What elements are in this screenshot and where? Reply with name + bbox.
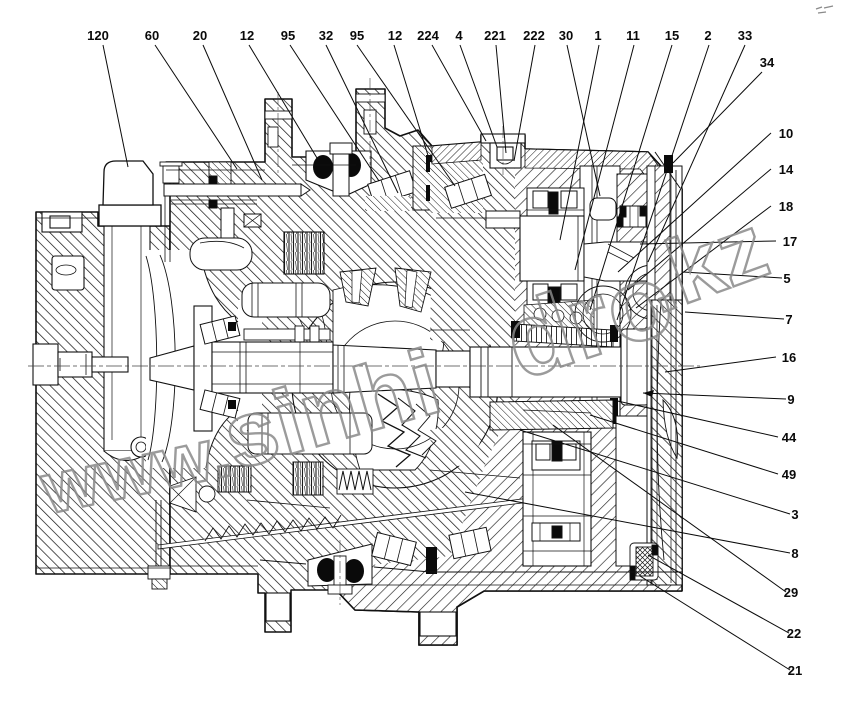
svg-text:95: 95 — [281, 28, 295, 43]
svg-text:2: 2 — [704, 28, 711, 43]
svg-text:11: 11 — [626, 28, 640, 43]
svg-text:12: 12 — [388, 28, 402, 43]
svg-text:3: 3 — [791, 507, 798, 522]
svg-text:33: 33 — [738, 28, 752, 43]
svg-text:221: 221 — [484, 28, 506, 43]
svg-text:10: 10 — [779, 126, 793, 141]
svg-text:34: 34 — [760, 55, 775, 70]
svg-text:17: 17 — [783, 234, 797, 249]
svg-text:22: 22 — [787, 626, 801, 641]
svg-text:224: 224 — [417, 28, 439, 43]
svg-text:15: 15 — [665, 28, 679, 43]
svg-text:4: 4 — [455, 28, 463, 43]
svg-text:49: 49 — [782, 467, 796, 482]
svg-text:5: 5 — [783, 271, 790, 286]
svg-text:18: 18 — [779, 199, 793, 214]
svg-text:12: 12 — [240, 28, 254, 43]
svg-text:222: 222 — [523, 28, 545, 43]
svg-text:29: 29 — [784, 585, 798, 600]
svg-text:16: 16 — [782, 350, 796, 365]
svg-text:20: 20 — [193, 28, 207, 43]
svg-text:60: 60 — [145, 28, 159, 43]
svg-text:32: 32 — [319, 28, 333, 43]
svg-text:30: 30 — [559, 28, 573, 43]
svg-text:9: 9 — [787, 392, 794, 407]
svg-text:44: 44 — [782, 430, 797, 445]
svg-text:8: 8 — [791, 546, 798, 561]
svg-text:95: 95 — [350, 28, 364, 43]
svg-text:14: 14 — [779, 162, 794, 177]
svg-text:1: 1 — [594, 28, 601, 43]
svg-text:21: 21 — [788, 663, 802, 678]
svg-text:120: 120 — [87, 28, 109, 43]
svg-text:7: 7 — [785, 312, 792, 327]
